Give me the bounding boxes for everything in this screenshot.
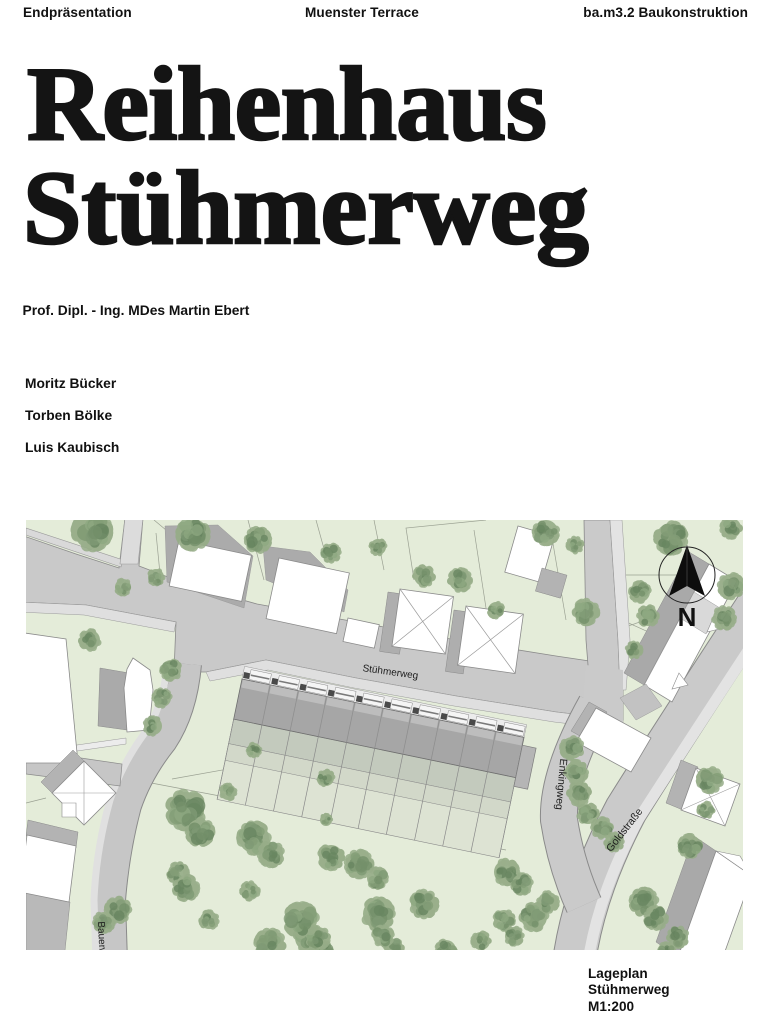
svg-text:Bauerweg: Bauerweg [95,921,108,950]
svg-text:N: N [678,602,697,632]
